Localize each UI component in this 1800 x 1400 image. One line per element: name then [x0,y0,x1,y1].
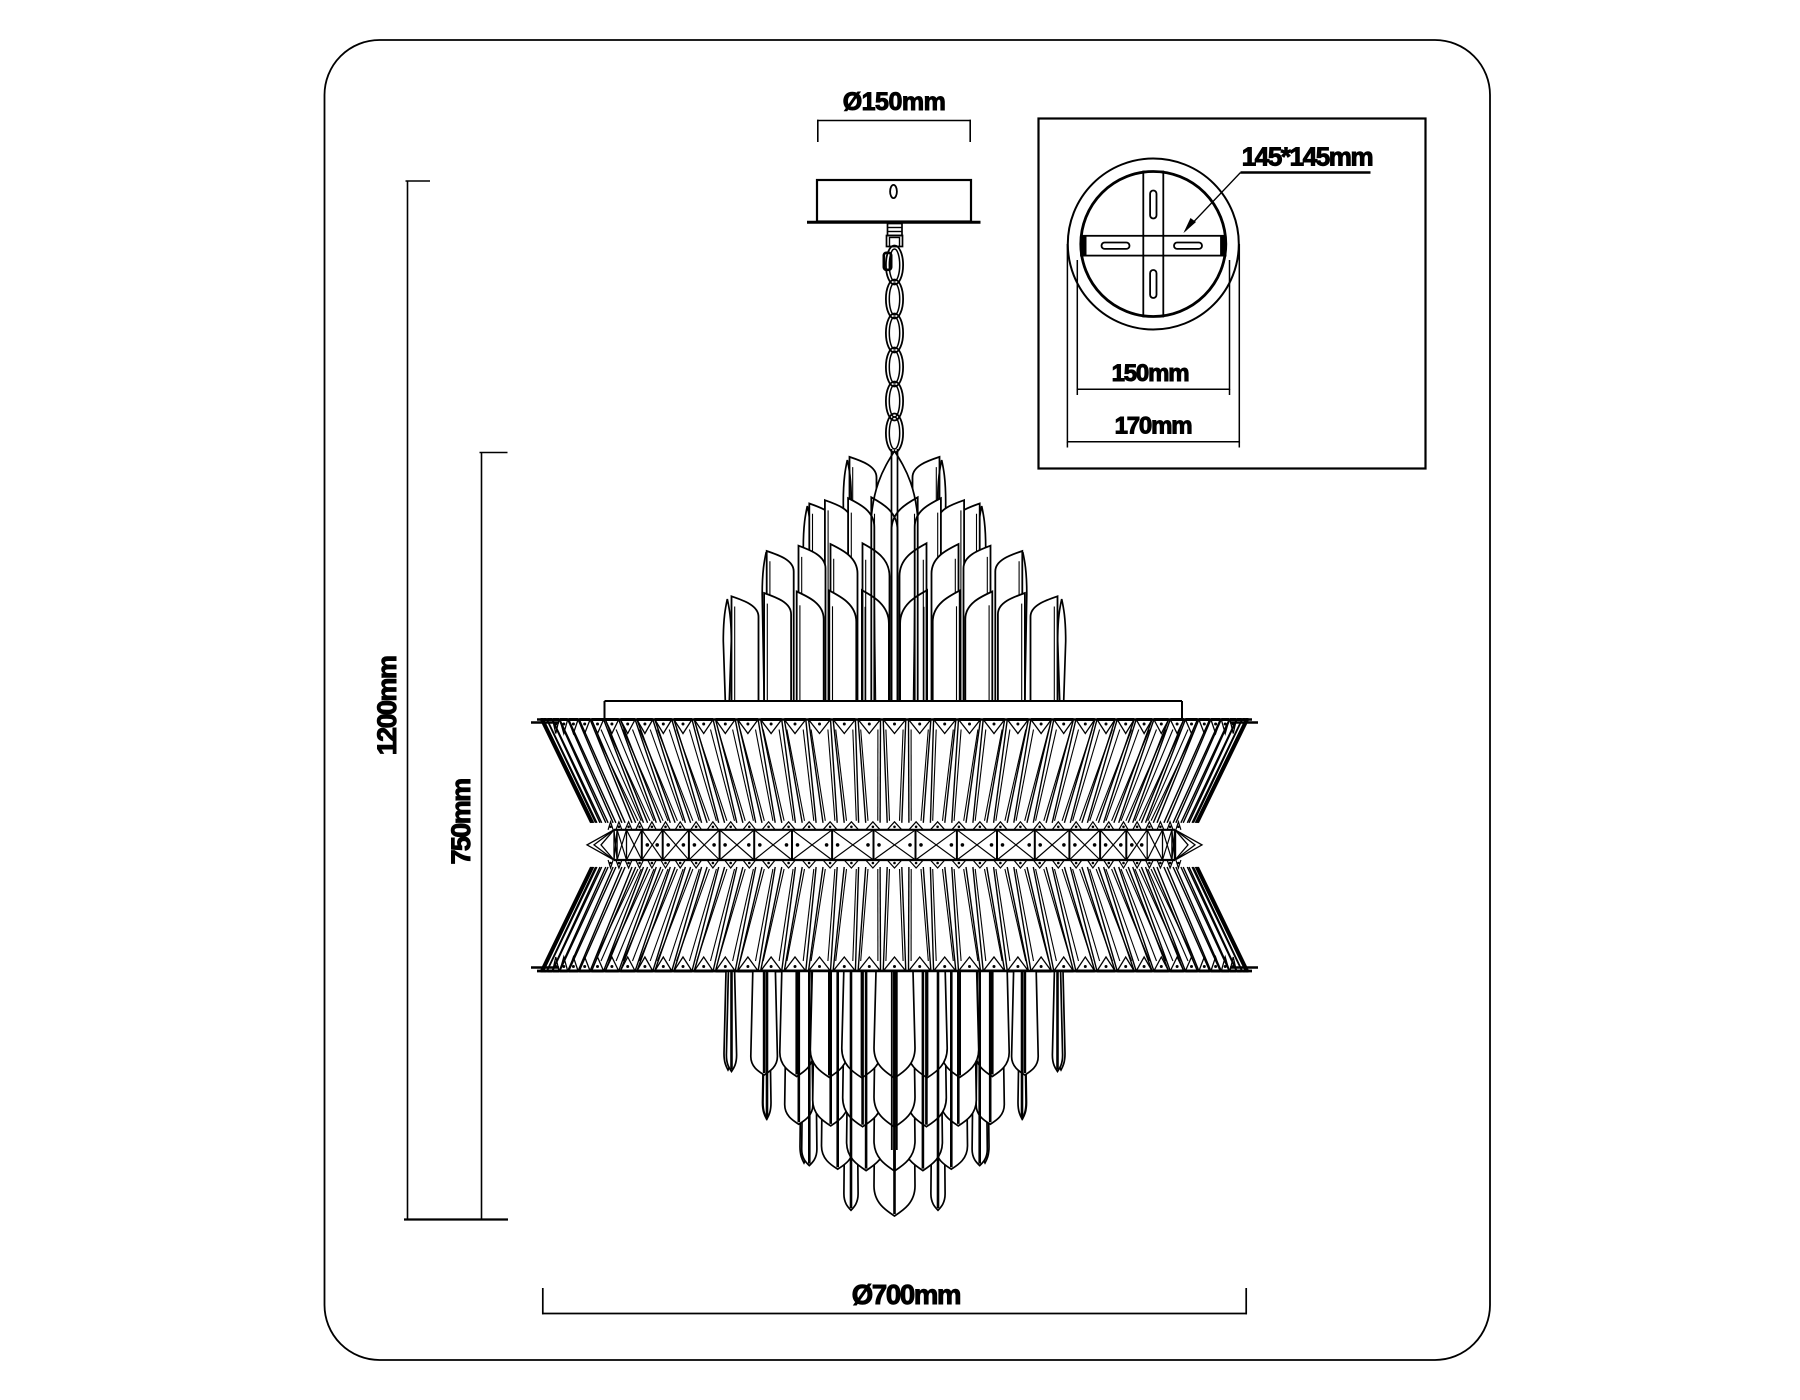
svg-text:Ø700mm: Ø700mm [852,1279,960,1310]
svg-text:150mm: 150mm [1112,360,1189,387]
svg-text:145*145mm: 145*145mm [1242,142,1373,172]
svg-text:750mm: 750mm [446,779,476,865]
svg-text:Ø150mm: Ø150mm [843,88,946,116]
svg-text:170mm: 170mm [1115,413,1192,440]
svg-text:1200mm: 1200mm [372,656,402,755]
